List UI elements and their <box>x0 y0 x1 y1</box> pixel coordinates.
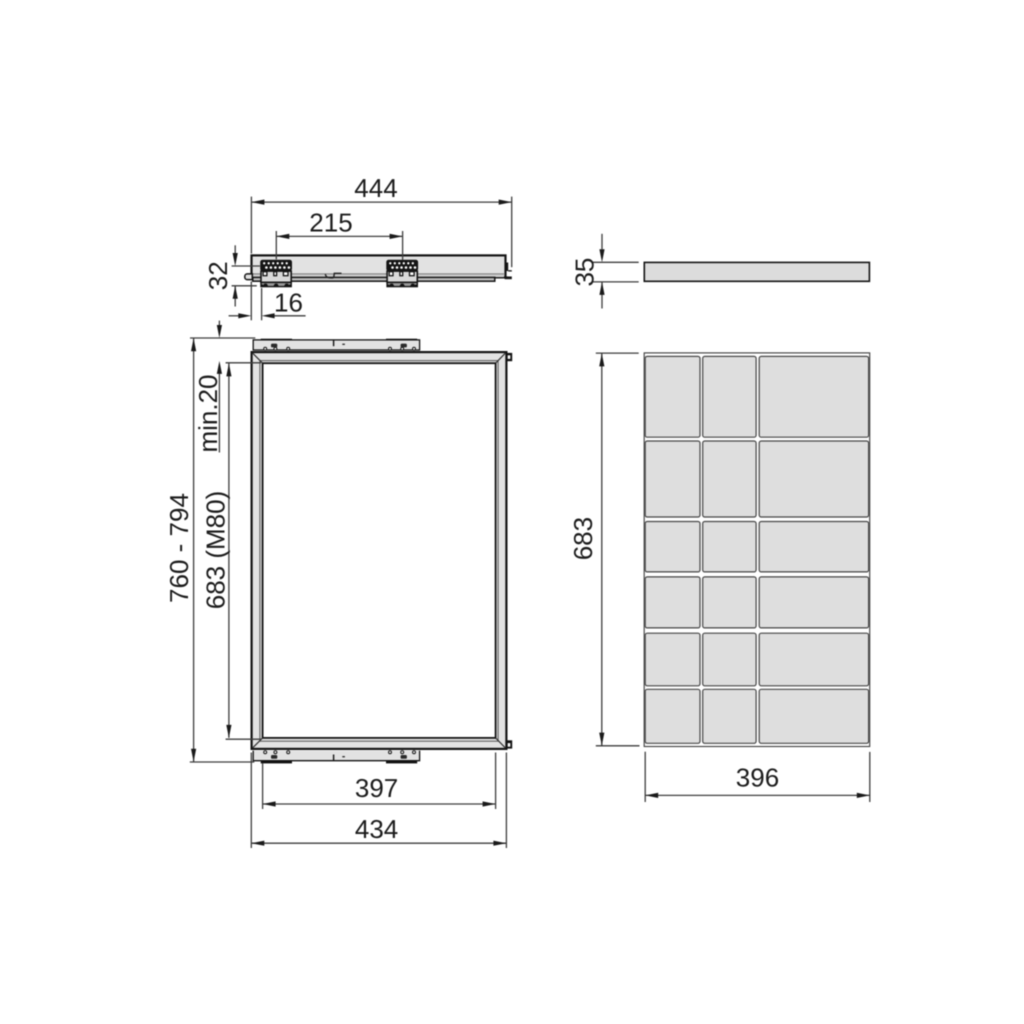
svg-text:16: 16 <box>274 288 303 318</box>
svg-text:683: 683 <box>568 517 598 560</box>
svg-text:434: 434 <box>355 814 398 844</box>
svg-text:683 (M80): 683 (M80) <box>201 491 231 610</box>
svg-text:215: 215 <box>309 208 352 238</box>
svg-text:35: 35 <box>570 258 600 287</box>
svg-text:397: 397 <box>355 773 398 803</box>
svg-text:760 - 794: 760 - 794 <box>164 493 194 603</box>
svg-text:min.20: min.20 <box>193 374 223 452</box>
svg-text:396: 396 <box>736 763 779 793</box>
svg-text:32: 32 <box>203 261 233 290</box>
svg-text:444: 444 <box>354 173 397 203</box>
